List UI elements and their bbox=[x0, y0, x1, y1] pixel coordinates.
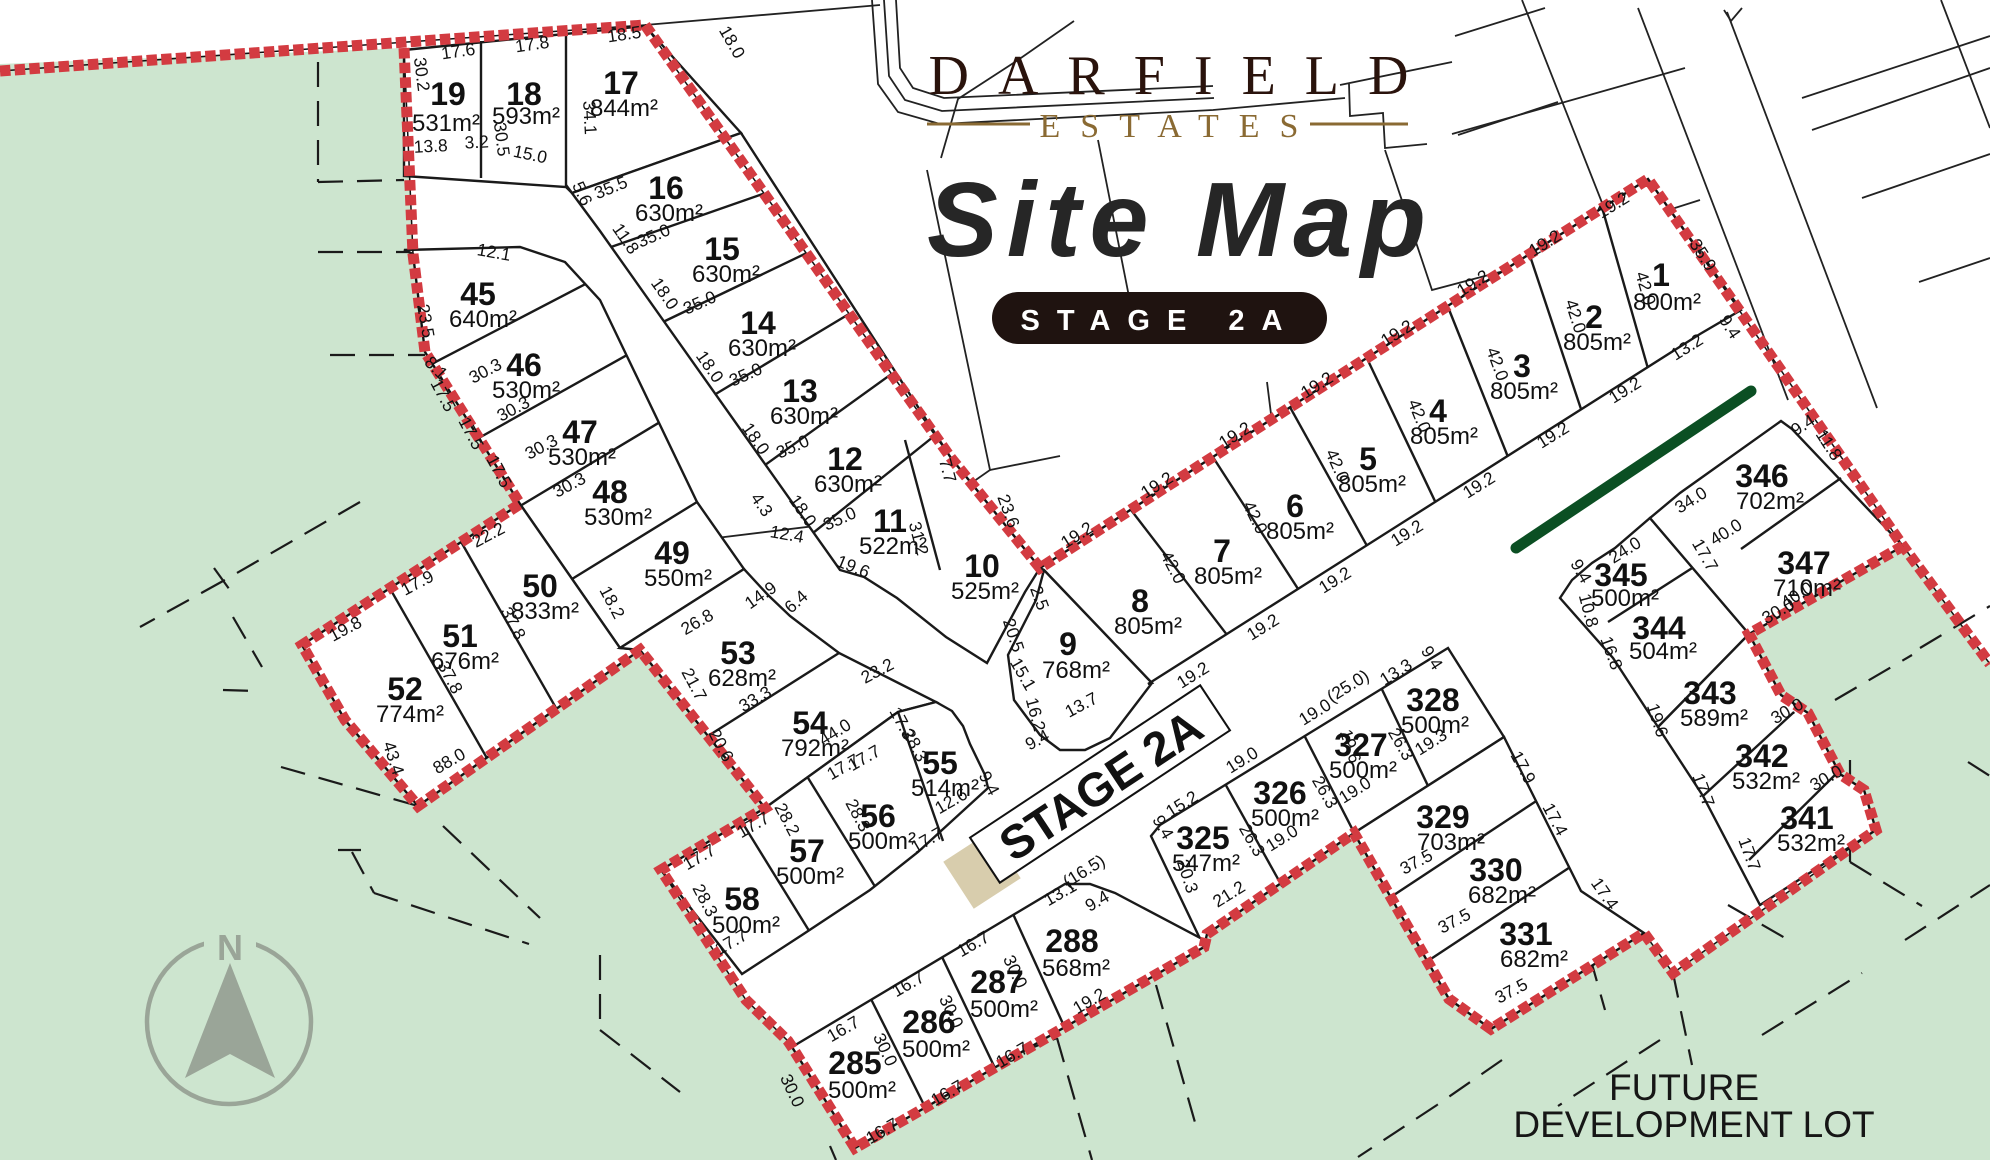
svg-text:ESTATES: ESTATES bbox=[1040, 108, 1319, 145]
svg-text:Site Map: Site Map bbox=[927, 161, 1435, 279]
svg-text:805m²: 805m² bbox=[1194, 563, 1262, 590]
svg-text:805m²: 805m² bbox=[1114, 613, 1182, 640]
svg-text:STAGE 2A: STAGE 2A bbox=[1021, 305, 1300, 337]
svg-text:805m²: 805m² bbox=[1266, 518, 1334, 545]
svg-text:34.1: 34.1 bbox=[579, 100, 601, 135]
svg-text:N: N bbox=[217, 927, 243, 968]
svg-text:500m²: 500m² bbox=[902, 1036, 970, 1063]
svg-text:530m²: 530m² bbox=[584, 504, 652, 531]
svg-text:500m²: 500m² bbox=[776, 863, 844, 890]
svg-text:532m²: 532m² bbox=[1732, 768, 1800, 795]
svg-text:774m²: 774m² bbox=[376, 701, 444, 728]
svg-text:550m²: 550m² bbox=[644, 565, 712, 592]
svg-text:630m²: 630m² bbox=[635, 200, 703, 227]
svg-text:682m²: 682m² bbox=[1468, 882, 1536, 909]
svg-text:525m²: 525m² bbox=[951, 578, 1019, 605]
svg-text:568m²: 568m² bbox=[1042, 955, 1110, 982]
svg-text:3.2: 3.2 bbox=[464, 131, 489, 152]
svg-text:FUTURE: FUTURE bbox=[1609, 1067, 1759, 1108]
svg-text:500m²: 500m² bbox=[1591, 585, 1659, 612]
svg-text:805m²: 805m² bbox=[1490, 378, 1558, 405]
svg-text:630m²: 630m² bbox=[814, 471, 882, 498]
svg-text:500m²: 500m² bbox=[828, 1077, 896, 1104]
svg-text:702m²: 702m² bbox=[1736, 488, 1804, 515]
svg-text:288: 288 bbox=[1045, 923, 1098, 959]
svg-text:630m²: 630m² bbox=[770, 403, 838, 430]
svg-text:30.5: 30.5 bbox=[490, 121, 514, 157]
svg-text:630m²: 630m² bbox=[692, 261, 760, 288]
svg-text:13.8: 13.8 bbox=[413, 135, 448, 157]
svg-text:DEVELOPMENT LOT: DEVELOPMENT LOT bbox=[1513, 1104, 1874, 1145]
svg-text:640m²: 640m² bbox=[449, 306, 517, 333]
svg-text:19: 19 bbox=[430, 76, 466, 112]
svg-text:500m²: 500m² bbox=[970, 996, 1038, 1023]
svg-text:DARFIELD: DARFIELD bbox=[929, 45, 1438, 107]
svg-text:682m²: 682m² bbox=[1500, 946, 1568, 973]
svg-text:589m²: 589m² bbox=[1680, 705, 1748, 732]
svg-text:630m²: 630m² bbox=[728, 335, 796, 362]
svg-text:285: 285 bbox=[828, 1045, 881, 1081]
svg-text:532m²: 532m² bbox=[1777, 830, 1845, 857]
svg-text:30.2: 30.2 bbox=[410, 56, 434, 92]
svg-text:768m²: 768m² bbox=[1042, 657, 1110, 684]
svg-text:504m²: 504m² bbox=[1629, 638, 1697, 665]
